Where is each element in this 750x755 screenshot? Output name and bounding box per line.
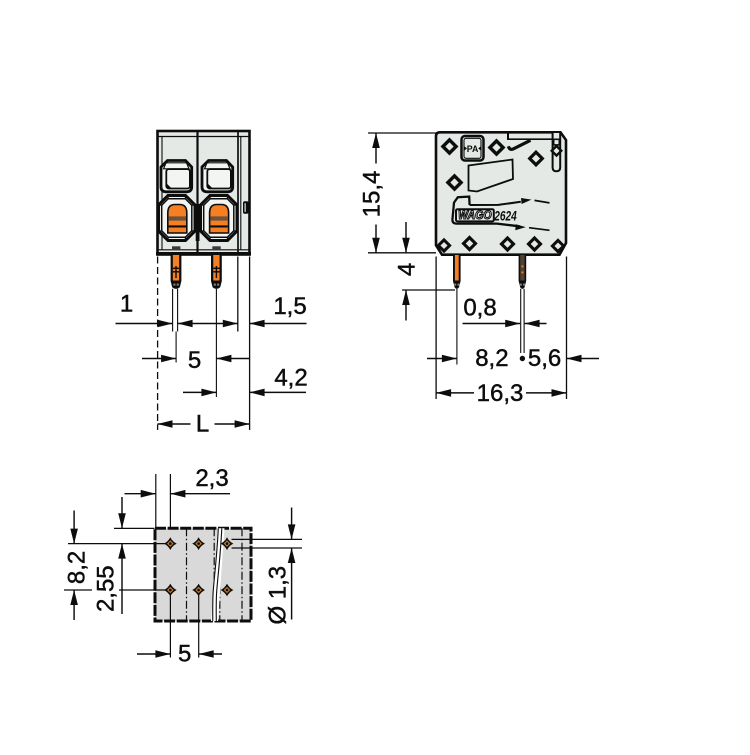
svg-text:5,6: 5,6 <box>528 345 561 372</box>
svg-text:8,2: 8,2 <box>475 345 508 372</box>
svg-text:0,8: 0,8 <box>463 295 496 322</box>
svg-text:PA: PA <box>467 144 479 154</box>
svg-text:4: 4 <box>394 263 421 276</box>
svg-text:16,3: 16,3 <box>477 380 524 407</box>
svg-text:8,2: 8,2 <box>64 551 91 584</box>
svg-text:L: L <box>196 411 209 438</box>
svg-text:4,2: 4,2 <box>274 365 307 392</box>
svg-text:WAGO: WAGO <box>458 210 492 222</box>
svg-text:5: 5 <box>178 641 191 668</box>
svg-text:2624: 2624 <box>494 208 518 223</box>
svg-text:Ø 1,3: Ø 1,3 <box>265 566 292 625</box>
svg-text:2,55: 2,55 <box>93 565 120 612</box>
svg-text:1: 1 <box>120 291 133 318</box>
svg-text:15,4: 15,4 <box>359 171 386 218</box>
svg-text:1,5: 1,5 <box>273 293 306 320</box>
svg-text:2,3: 2,3 <box>195 465 228 492</box>
svg-text:5: 5 <box>188 347 201 374</box>
